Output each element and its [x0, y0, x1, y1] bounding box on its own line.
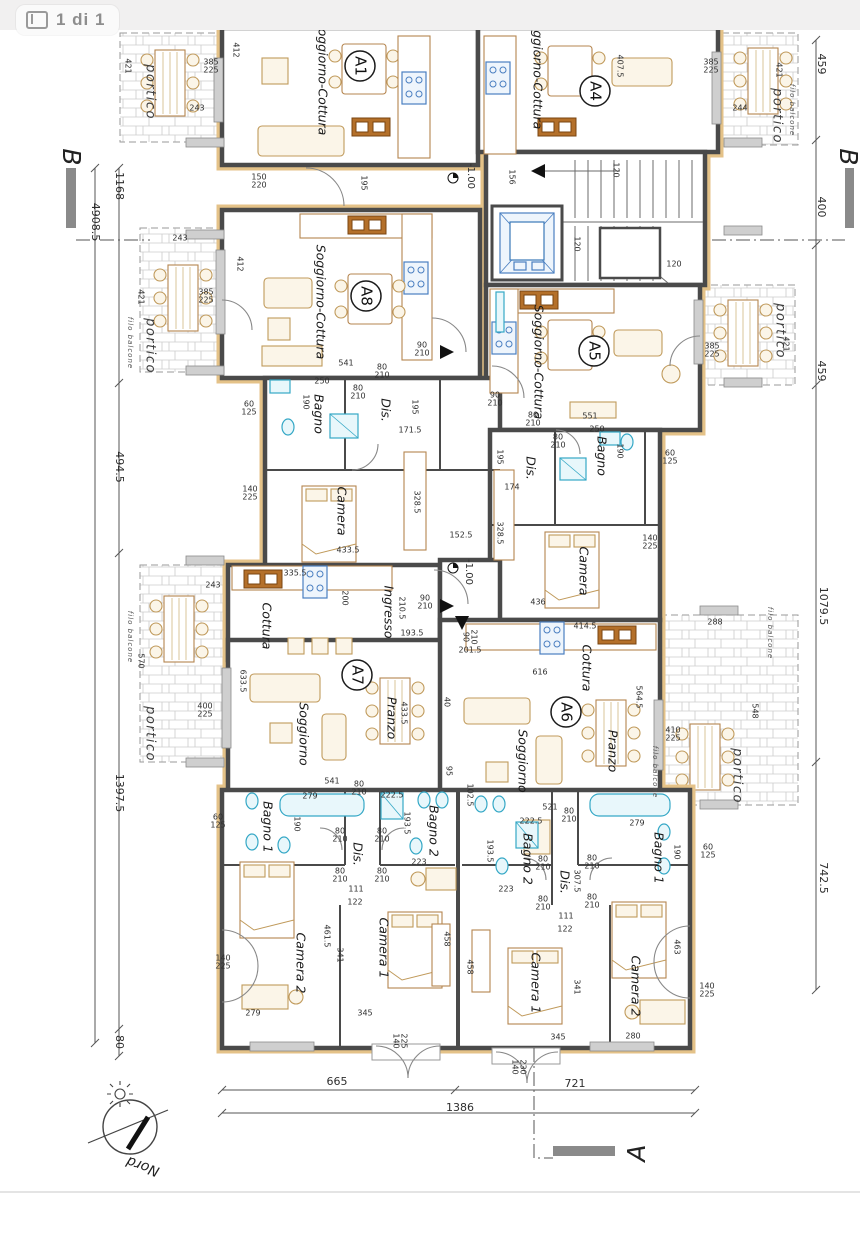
dimension-label: 40	[443, 697, 452, 707]
dimension-label: 433.5	[400, 702, 409, 725]
dimension-label: 458	[443, 931, 452, 946]
dimension-label: -1.00	[465, 163, 476, 189]
room-label: Dis.	[524, 456, 539, 480]
dimension-label: 4908.5	[89, 203, 102, 242]
dimension-label: 193.5	[403, 812, 412, 835]
dimension-label: 412	[232, 42, 241, 57]
dimension-label: 210	[584, 901, 599, 910]
dimension-label: 111	[348, 885, 363, 894]
dimension-label: 195	[360, 175, 369, 190]
filo-label: filo balcone	[651, 746, 659, 798]
room-label: Camera	[577, 546, 592, 595]
sun-icon	[107, 1081, 133, 1107]
dimension-label: 459	[815, 54, 828, 75]
dimension-label: 125	[210, 821, 225, 830]
dimension-label: 436	[530, 598, 545, 607]
room-label: Camera 2	[629, 956, 644, 1017]
portico-label: portico	[730, 747, 745, 804]
dimension-label: 190	[673, 844, 682, 859]
dimension-label: 210	[417, 602, 432, 611]
elevator	[492, 206, 562, 280]
window	[694, 300, 703, 364]
dimension-label: 210	[350, 392, 365, 401]
room-label: Ingresso	[382, 585, 397, 638]
dimension-label: 335.5	[284, 569, 307, 578]
dimension-label: 225	[242, 493, 257, 502]
portico-label: portico	[143, 63, 158, 120]
outdoor-table	[714, 300, 772, 366]
dimension-label: 210	[550, 441, 565, 450]
dimension-label: 120	[612, 162, 621, 177]
section-marker-label: B	[57, 148, 86, 165]
section-b-bar-right	[845, 168, 854, 228]
room-label: Camera	[335, 486, 350, 535]
dimension-label: 243	[172, 234, 187, 243]
dimension-label: 140	[511, 1059, 520, 1074]
outdoor-table	[676, 724, 734, 790]
page-indicator-label: 1 di 1	[56, 10, 105, 30]
section-marker-label: B	[834, 148, 860, 165]
dimension-label: 171.5	[399, 426, 422, 435]
dimension-label: 243	[189, 104, 204, 113]
dimension-label: -1.00	[463, 559, 474, 585]
dimension-label: 328.5	[496, 522, 505, 545]
room-label: Bagno 1	[652, 832, 667, 884]
dimension-label: 190	[616, 443, 625, 458]
dimension-label: 200	[341, 590, 350, 605]
dimension-label: 152.5	[450, 531, 473, 540]
outdoor-table	[150, 596, 208, 662]
room-label: Dis.	[379, 398, 394, 422]
room-label: Bagno 1	[261, 801, 276, 853]
dimension-label: 222.5	[520, 817, 543, 826]
room-label: Dis.	[351, 842, 366, 866]
dimension-label: 210	[351, 788, 366, 797]
dimension-label: 193.5	[486, 840, 495, 863]
dimension-label: 564.5	[635, 686, 644, 709]
dimension-label: 223	[411, 858, 426, 867]
dimension-label: 548	[751, 703, 760, 718]
dimension-label: 120	[666, 260, 681, 269]
room-label: Camera 1	[529, 953, 544, 1014]
room-label: Soggiorno-Cottura	[314, 245, 329, 360]
dimension-label: 665	[327, 1075, 348, 1088]
room-label: Dis.	[558, 870, 573, 894]
dimension-label: 201.5	[459, 646, 482, 655]
dimension-label: 190	[293, 816, 302, 831]
dimension-label: 616	[532, 668, 547, 677]
dimension-label: 541	[324, 777, 339, 786]
north-compass	[88, 1081, 168, 1154]
dimension-label: 1386	[446, 1101, 474, 1114]
portico-label: portico	[143, 705, 158, 762]
dimension-label: 210	[470, 629, 479, 644]
viewer-stage: 4908.51168494.51397.5804594004591079.574…	[0, 0, 860, 1234]
dimension-label: 174	[504, 483, 519, 492]
dimension-label: 421	[124, 58, 133, 73]
dimension-label: 328.5	[413, 491, 422, 514]
dimension-label: 459	[815, 361, 828, 382]
dimension-label: 225	[197, 710, 212, 719]
dimension-label: 458	[466, 959, 475, 974]
dimension-label: 210	[374, 371, 389, 380]
dimension-label: 122	[557, 925, 572, 934]
window	[590, 1042, 654, 1051]
dimension-label: 80	[113, 1035, 126, 1049]
dimension-label: 225	[665, 734, 680, 743]
dimension-label: 220	[251, 181, 266, 190]
dimension-label: 225	[699, 990, 714, 999]
dimension-label: 122	[347, 898, 362, 907]
window	[222, 668, 231, 748]
apartment-label: A5	[586, 341, 604, 361]
dimension-label: 90	[462, 632, 471, 642]
dimension-label: 210	[584, 862, 599, 871]
dimension-label: 633.5	[239, 670, 248, 693]
dimension-label: 120	[573, 236, 582, 251]
dimension-label: 341	[573, 979, 582, 994]
dimension-label: 345	[550, 1033, 565, 1042]
dimension-label: 345	[357, 1009, 372, 1018]
dimension-label: 1168	[113, 172, 126, 200]
room-label: Soggiorno	[516, 729, 531, 793]
room-label: Soggiorno-Cottura	[532, 305, 547, 420]
dimension-label: 210.5	[398, 597, 407, 620]
dimension-label: 721	[565, 1077, 586, 1090]
dimension-label: 195	[496, 449, 505, 464]
dimension-label: 225	[703, 66, 718, 75]
dimension-label: 225	[642, 542, 657, 551]
stair-landing	[600, 228, 660, 278]
dimension-label: 225	[215, 962, 230, 971]
dimension-label: 1079.5	[817, 587, 830, 626]
dimension-label: 421	[137, 289, 146, 304]
dimension-label: 195	[411, 399, 420, 414]
north-label: Nord	[124, 1153, 161, 1180]
filo-label: filo balcone	[126, 317, 134, 369]
dimension-label: 244	[732, 104, 747, 113]
dimension-label: 742.5	[817, 862, 830, 894]
dimension-label: 279	[302, 792, 317, 801]
room-label: Soggiorno-Cottura	[531, 15, 546, 130]
dimension-label: 570	[137, 653, 146, 668]
apartment-label: A7	[349, 665, 367, 685]
floor-plan-canvas[interactable]: 4908.51168494.51397.5804594004591079.574…	[0, 0, 860, 1234]
dimension-label: 190	[302, 394, 311, 409]
page-indicator-pill[interactable]: 1 di 1	[16, 5, 119, 35]
dimension-label: 210	[374, 835, 389, 844]
dimension-label: 210	[561, 815, 576, 824]
dimension-label: 95	[445, 766, 454, 776]
dimension-label: 341	[336, 947, 345, 962]
dimension-label: 225	[203, 66, 218, 75]
room-label: Bagno	[595, 436, 610, 476]
dimension-label: 210	[332, 875, 347, 884]
room-label: Bagno 2	[521, 833, 536, 885]
apartment-label: A6	[558, 702, 576, 722]
room-label: Camera 1	[377, 918, 392, 979]
dimension-label: 407.5	[616, 55, 625, 78]
dimension-label: 279	[245, 1009, 260, 1018]
dimension-label: 307.5	[573, 870, 582, 893]
dimension-label: 463	[673, 939, 682, 954]
dimension-label: 225	[198, 296, 213, 305]
dimension-label: 521	[542, 803, 557, 812]
filo-label: filo balcone	[766, 607, 774, 659]
viewer-topbar: 1 di 1	[0, 0, 860, 30]
bathtub	[280, 794, 364, 816]
portico-label: portico	[143, 317, 158, 374]
section-b-bar-left	[66, 168, 76, 228]
room-label: Pranzo	[385, 697, 400, 740]
dimension-label: 243	[205, 581, 220, 590]
dimension-label: 210	[535, 903, 550, 912]
apartment-label: A4	[587, 81, 605, 101]
dimension-label: 102.5	[466, 784, 475, 807]
room-label: Bagno	[312, 394, 327, 434]
room-label: Bagno 2	[427, 805, 442, 857]
dimension-label: 1397.5	[113, 774, 126, 813]
room-label: Soggiorno	[297, 702, 312, 766]
dimension-label: 250	[589, 425, 604, 434]
apartment-label: A1	[352, 56, 370, 76]
dimension-label: 225	[704, 350, 719, 359]
washbasin	[270, 380, 290, 393]
dimension-label: 551	[582, 412, 597, 421]
dimension-label: 230	[519, 1059, 528, 1074]
room-label: Soggiorno-Cottura	[316, 21, 331, 136]
dimension-label: 111	[558, 912, 573, 921]
portico-label: portico	[770, 87, 785, 144]
dimension-label: 210	[487, 399, 502, 408]
dimension-label: 414.5	[574, 622, 597, 631]
dimension-label: 125	[700, 851, 715, 860]
toilet	[282, 419, 294, 435]
dimension-label: 421	[775, 62, 784, 77]
dimension-label: 140	[392, 1033, 401, 1048]
window	[250, 1042, 314, 1051]
pages-icon	[26, 11, 48, 29]
dimension-label: 250	[314, 377, 329, 386]
apartment-label: A8	[358, 286, 376, 306]
window	[216, 250, 225, 334]
dimension-label: 193.5	[401, 629, 424, 638]
dimension-label: 288	[707, 618, 722, 627]
dimension-label: 541	[338, 359, 353, 368]
dimension-label: 156	[508, 169, 517, 184]
dimension-label: 210	[332, 835, 347, 844]
dimension-label: 222.5	[381, 791, 404, 800]
dimension-label: 125	[241, 408, 256, 417]
dimension-label: 461.5	[323, 925, 332, 948]
room-label: Camera 2	[294, 933, 309, 994]
dimension-label: 412	[236, 256, 245, 271]
dimension-label: 225	[400, 1033, 409, 1048]
dimension-label: 210	[535, 863, 550, 872]
section-marker-label: A	[622, 1144, 651, 1163]
dimension-label: 210	[374, 875, 389, 884]
filo-label: filo balcone	[788, 84, 796, 136]
dimension-label: 125	[662, 457, 677, 466]
portico-label: portico	[773, 302, 788, 359]
dimension-label: 210	[525, 419, 540, 428]
room-label: Cottura	[260, 603, 275, 650]
dimension-label: 210	[414, 349, 429, 358]
section-a-bar	[553, 1146, 615, 1156]
filo-label: filo balcone	[126, 611, 134, 663]
dimension-label: 223	[498, 885, 513, 894]
dimension-label: 494.5	[113, 451, 126, 483]
room-label: Pranzo	[606, 730, 621, 773]
dimension-label: 280	[625, 1032, 640, 1041]
dimension-label: 433.5	[337, 546, 360, 555]
room-label: Cottura	[580, 645, 595, 692]
dimension-label: 279	[629, 819, 644, 828]
dimension-label: 400	[815, 197, 828, 218]
